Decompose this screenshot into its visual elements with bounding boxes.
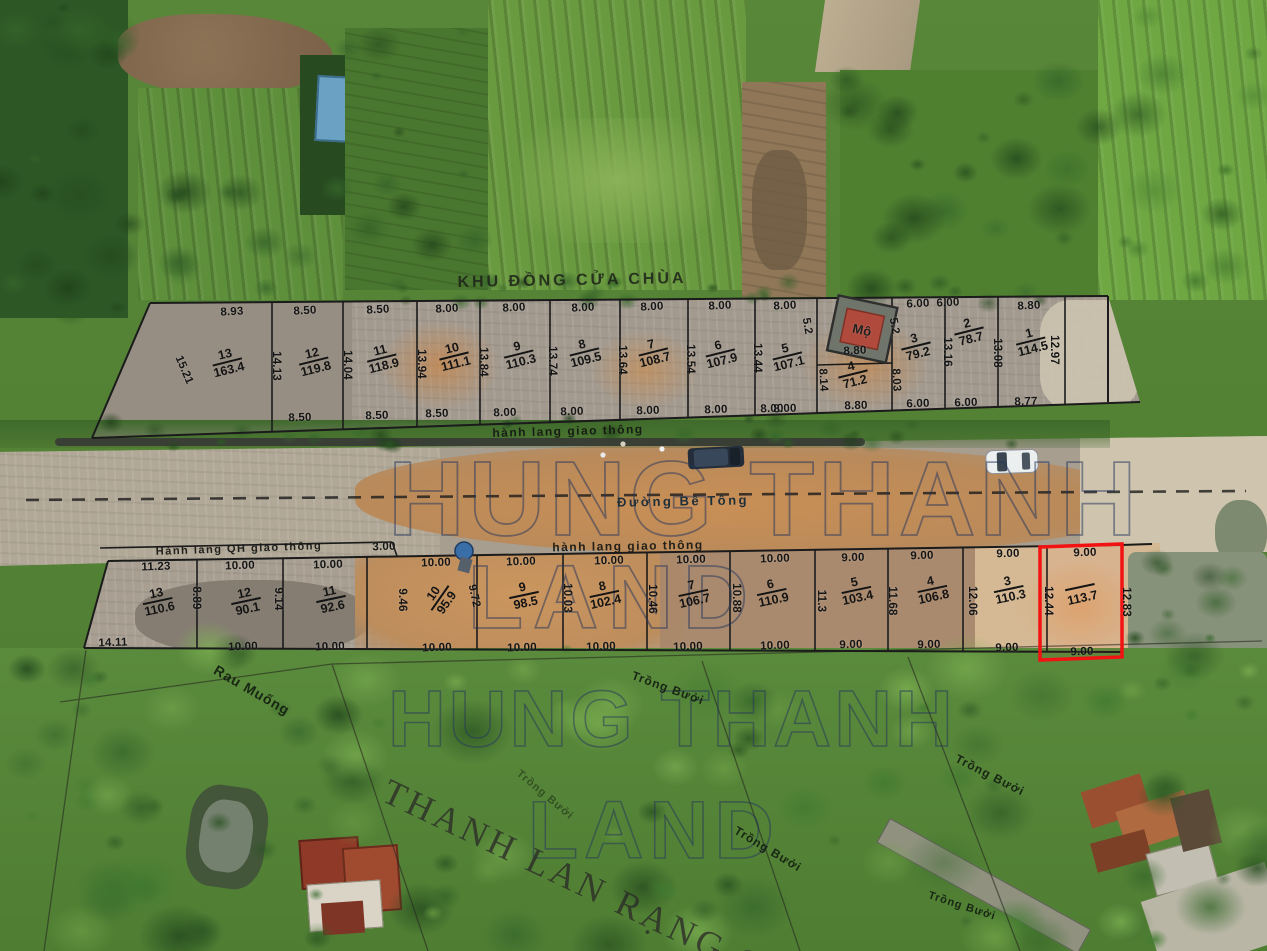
- top-plot-2-label-number: 2: [951, 314, 984, 336]
- watermark-road-line1: HUNG THANH: [388, 440, 1141, 558]
- top-plot-2-right-side-dim: 13.08: [991, 338, 1003, 368]
- canopy-blob: [160, 252, 203, 286]
- top-plot-8-label-number: 8: [566, 335, 599, 357]
- top-plot-10-label: 10111.1: [436, 338, 472, 374]
- van: [687, 446, 744, 470]
- canopy-blob: [893, 277, 917, 296]
- boundary-line: [84, 561, 108, 648]
- field-bright-right: [1098, 0, 1267, 300]
- canopy-blob: [846, 268, 897, 309]
- top-plot-3-label-number: 3: [898, 329, 931, 351]
- canopy-blob: [396, 283, 410, 294]
- top-plot-1-right-side-dim: 12.97: [1048, 335, 1060, 365]
- canopy-blob: [882, 193, 946, 244]
- canopy-blob: [36, 165, 49, 175]
- canopy-blob: [83, 233, 140, 279]
- canopy-blob: [876, 95, 919, 130]
- white-car: [986, 449, 1039, 474]
- top-plot-3-bottom-dim: 6.00: [906, 398, 930, 411]
- canopy-blob: [450, 293, 473, 311]
- bottom-plot-12-top-dim: 10.00: [225, 559, 255, 572]
- canopy-blob: [1032, 294, 1048, 307]
- bottom-plot-10-label-area: 95.9: [432, 586, 461, 619]
- canopy-blob: [65, 117, 100, 145]
- top-plot-12-top-dim: 8.50: [293, 304, 317, 317]
- canopy-blob: [947, 285, 963, 298]
- top-plot-5-top-dim: 8.00: [773, 299, 797, 312]
- top-plot-2-bottom-dim: 6.00: [954, 397, 978, 410]
- canopy-blob: [370, 71, 383, 82]
- bottom-plot-9-label-number: 9: [506, 578, 538, 599]
- boundary-line: [817, 363, 892, 365]
- bottom-plot-7-right-side-dim: 10.88: [730, 583, 742, 613]
- temple-roof-small: [321, 901, 365, 936]
- top-plot-1-label-area: 114.5: [1016, 338, 1049, 359]
- canopy-blob: [0, 10, 41, 50]
- canopy-blob: [100, 28, 139, 60]
- top-plot-10-label-area: 111.1: [440, 353, 472, 374]
- top-plot-13-label-area: 163.4: [212, 359, 246, 380]
- canopy-blob: [1109, 91, 1167, 138]
- top-plot-4-label: 471.2: [835, 356, 871, 392]
- bottom-plot-13-right-side-dim: 8.89: [190, 586, 202, 609]
- top-plot-2-label-area: 78.7: [955, 328, 987, 349]
- canopy-blob: [40, 25, 96, 70]
- bottom-band-boundary: [84, 542, 1152, 652]
- canopy-blob: [388, 276, 407, 291]
- canopy-blob: [108, 301, 125, 315]
- top-band-left-edge-dim: 15.21: [173, 354, 196, 386]
- top-plot-8-right-side-dim: 13.64: [616, 345, 628, 375]
- canopy-blob: [372, 172, 402, 196]
- bottom-plot-9-top-dim: 10.00: [506, 555, 536, 568]
- canopy-blob: [320, 175, 354, 202]
- canopy-blob: [1054, 230, 1074, 246]
- canopy-blob: [27, 153, 43, 165]
- top-plot-1-top-dim: 8.80: [1017, 299, 1041, 312]
- bottom-plot-7-label-area: 106.7: [678, 591, 712, 611]
- top-plot-4-left-side-dim: 8.14: [816, 368, 829, 392]
- canopy-blob: [457, 169, 470, 179]
- canopy-blob: [158, 245, 200, 279]
- top-plot-6-top-dim: 8.00: [708, 299, 732, 312]
- bottom-plot-7-top-dim: 10.00: [676, 553, 706, 566]
- bottom-plot-12-label-area: 90.1: [232, 599, 264, 619]
- dirt-mound: [118, 14, 333, 94]
- canopy-blob: [1032, 60, 1085, 102]
- canopy-blob: [1235, 81, 1267, 111]
- canopy-blob: [68, 7, 142, 66]
- top-plot-7-bottom-dim: 8.00: [704, 404, 728, 417]
- top-plot-9-bottom-dim: 8.00: [560, 406, 584, 419]
- canopy-blob: [777, 273, 801, 292]
- bottom-plot-9-label: 998.5: [506, 577, 542, 613]
- canopy-blob: [348, 211, 391, 245]
- canopy-blob: [759, 292, 771, 302]
- bottom-plot-3-label-area: 110.3: [994, 587, 1027, 607]
- bottom-plot-6-right-side-dim: 11.3: [815, 590, 827, 613]
- bottom-vegetation: [0, 648, 1267, 951]
- field-dark: [300, 55, 370, 215]
- top-plot-13-label-number: 13: [209, 345, 242, 367]
- roadside-wall: [55, 438, 865, 446]
- canopy-blob: [45, 5, 110, 57]
- top-plot-8-top-dim: 8.00: [571, 301, 595, 314]
- canopy-blob: [53, 299, 88, 327]
- top-plot-6-label: 6107.9: [701, 335, 739, 372]
- canopy-blob: [42, 12, 68, 33]
- corridor-label-qh: Hành lang QH giao thông: [156, 540, 323, 558]
- watermark-road-line2: LAND: [468, 548, 758, 648]
- bottom-plot-13-label: 13110.6: [140, 583, 176, 619]
- top-plot-11-top-dim: 8.50: [366, 303, 390, 316]
- bottom-plot-5-right-side-dim: 11.68: [886, 586, 898, 615]
- top-plot-4-bottom-dim: 8.80: [844, 400, 868, 413]
- top-plot-2-label: 278.7: [951, 313, 987, 349]
- bottom-plot-6-label-number: 6: [754, 575, 786, 596]
- top-plot-6-bottom-dim: 8.00: [760, 403, 784, 416]
- canopy-blob: [990, 137, 1043, 179]
- top-plot-2-top-dim: 6.00: [936, 296, 960, 309]
- top-plot-13-top-dim: 8.93: [220, 305, 244, 318]
- canopy-blob: [456, 27, 470, 38]
- grave-side-left-dim: 5.2: [800, 317, 815, 335]
- canopy-blob: [1132, 4, 1164, 30]
- top-plot-4-label-number: 4: [835, 357, 868, 379]
- top-plot-7-label: 7108.7: [634, 334, 672, 371]
- bottom-plot-6-top-dim: 10.00: [760, 552, 790, 565]
- canopy-blob: [399, 295, 412, 306]
- canopy-blob: [919, 191, 969, 231]
- top-plot-8-label-area: 109.5: [569, 349, 603, 370]
- bottom-plot-8-right-side-dim: 10.46: [646, 584, 658, 614]
- top-plot-13-label: 13163.4: [208, 344, 246, 381]
- grave-side-right-dim: 5.2: [887, 317, 902, 335]
- bottom-plot-highlighted-label-area: 113.7: [1066, 588, 1099, 608]
- field-light: [520, 118, 715, 243]
- canopy-blob: [1125, 239, 1150, 259]
- canopy-blob: [829, 66, 864, 94]
- top-plot-10-bottom-dim: 8.00: [493, 407, 517, 420]
- top-plot-7-label-area: 108.7: [638, 349, 672, 370]
- bottom-plot-13-label-area: 110.6: [143, 599, 176, 619]
- bottom-plot-12-right-side-dim: 9.14: [272, 587, 284, 610]
- road-name-label: Đường Bê Tông: [617, 492, 749, 509]
- bottom-plot-11-label-number: 11: [313, 582, 345, 603]
- canopy-blob: [1202, 248, 1249, 286]
- canopy-blob: [706, 283, 719, 293]
- top-plot-9-label: 9110.3: [501, 336, 538, 373]
- bottom-plot-6-label: 6110.9: [754, 574, 790, 610]
- blue-pump: [455, 542, 473, 573]
- canopy-blob: [47, 170, 111, 221]
- bottom-plot-11-top-dim: 10.00: [313, 558, 343, 571]
- canopy-blob: [1123, 167, 1182, 214]
- canopy-blob: [1216, 163, 1234, 178]
- top-plot-10-top-dim: 8.00: [435, 302, 459, 315]
- bottom-plot-11-label: 1192.6: [313, 581, 349, 617]
- top-plot-12-right-side-dim: 14.04: [341, 350, 353, 380]
- top-plot-9-label-number: 9: [501, 337, 534, 359]
- canopy-blob: [1075, 108, 1122, 146]
- bottom-plot-3-right-side-dim: 12.44: [1042, 586, 1054, 616]
- canopy-blob: [1244, 46, 1263, 61]
- canopy-blob: [1201, 197, 1243, 230]
- top-plot-11-right-side-dim: 13.94: [415, 349, 427, 379]
- canopy-blob: [456, 225, 493, 255]
- top-plot-9-label-area: 110.3: [504, 351, 537, 372]
- canopy-blob: [839, 103, 860, 120]
- top-plot-8-label: 8109.5: [565, 334, 603, 371]
- canopy-blob: [254, 278, 278, 297]
- canopy-blob: [29, 183, 56, 205]
- bottom-plot-5-label: 5103.4: [838, 572, 875, 608]
- canopy-blob: [867, 110, 914, 147]
- highlighted-plot-outline: [1040, 544, 1122, 660]
- bottom-plot-5-label-number: 5: [838, 573, 870, 594]
- top-plot-5-label-area: 107.1: [772, 353, 806, 374]
- canopy-blob: [334, 37, 363, 60]
- canopy-blob: [871, 221, 912, 254]
- canopy-blob: [744, 291, 761, 304]
- top-plot-7-top-dim: 8.00: [640, 300, 664, 313]
- bottom-plot-9-label-area: 98.5: [510, 593, 542, 613]
- canopy-blob: [1181, 269, 1210, 293]
- bottom-plot-11-right-side-dim: 9.46: [396, 588, 408, 611]
- canopy-blob: [0, 272, 28, 295]
- bottom-plot-4-right-side-dim: 12.06: [966, 586, 978, 616]
- top-plot-1-label-number: 1: [1013, 324, 1046, 346]
- bottom-plot-10-right-side-dim: 9.72: [466, 583, 483, 608]
- canopy-blob: [217, 174, 263, 211]
- top-plot-4-top-dim: 8.80: [843, 344, 867, 357]
- top-plot-8-bottom-dim: 8.00: [636, 405, 660, 418]
- bottom-plot-9-right-side-dim: 10.03: [561, 583, 573, 613]
- bottom-plot-10-label-number: 10: [420, 578, 449, 611]
- bottom-plot-highlighted-label: 113.7: [1063, 574, 1099, 608]
- field: [138, 88, 343, 300]
- tree-block: [0, 0, 128, 318]
- top-plot-5-label: 5107.1: [768, 338, 806, 375]
- canopy-blob: [114, 212, 144, 236]
- blue-tarp: [314, 75, 357, 143]
- canopy-blob: [1117, 235, 1134, 249]
- bottom-plot-5-label-area: 103.4: [841, 588, 875, 608]
- bottom-plot-3-top-dim: 9.00: [996, 548, 1020, 561]
- bottom-plot-8-top-dim: 10.00: [594, 554, 624, 567]
- canopy-blob: [981, 217, 1010, 240]
- top-plot-11-label-number: 11: [364, 341, 397, 363]
- bottom-plot-4-label-number: 4: [914, 572, 946, 593]
- path-top-right: [815, 0, 920, 72]
- top-plot-12-label-area: 119.8: [299, 358, 332, 379]
- bottom-plot-8-label-number: 8: [586, 577, 618, 598]
- canopy-blob: [822, 78, 888, 131]
- top-plot-6-label-area: 107.9: [705, 350, 739, 371]
- canopy-blob: [0, 164, 23, 200]
- top-plot-11-label: 11118.9: [364, 340, 401, 377]
- bottom-plot-3-label-number: 3: [991, 572, 1023, 593]
- top-plot-7-right-side-dim: 13.54: [684, 344, 696, 374]
- aerial-plot-map: HUNG THANH LAND HUNG THANH LAND THANH LA…: [0, 0, 1267, 951]
- top-plot-1-bottom-dim: 8.77: [1014, 396, 1038, 409]
- top-plot-3-top-dim: 6.00: [906, 297, 930, 310]
- canopy-blob: [616, 292, 639, 310]
- top-plot-4-label-area: 71.2: [839, 371, 871, 392]
- top-plot-1-label: 1114.5: [1013, 323, 1050, 360]
- canopy-blob: [88, 38, 128, 70]
- canopy-blob: [392, 126, 406, 137]
- top-plot-9-right-side-dim: 13.74: [546, 346, 558, 376]
- top-plot-12-label-number: 12: [296, 344, 329, 366]
- top-band-boundary: [92, 296, 1140, 438]
- canopy-blob: [157, 170, 211, 214]
- canopy-blob: [411, 228, 453, 261]
- top-plot-6-label-number: 6: [702, 336, 735, 358]
- mud-water: [752, 150, 807, 270]
- canopy-blob: [244, 226, 285, 259]
- bottom-plot-4-top-dim: 9.00: [910, 550, 934, 563]
- bottom-plot-8-label: 8102.4: [586, 576, 623, 612]
- area-name-label: KHU ĐỒNG CỬA CHÙA: [457, 270, 686, 292]
- top-plot-3-label-area: 79.2: [902, 343, 934, 364]
- top-plot-11-bottom-dim: 8.50: [425, 408, 449, 421]
- top-plot-11-label-area: 118.9: [367, 355, 400, 376]
- canopy-blob: [1013, 91, 1034, 108]
- canopy-blob: [1136, 53, 1189, 95]
- canopy-blob: [976, 293, 1001, 313]
- top-plot-7-label-number: 7: [635, 335, 668, 357]
- boundary-line: [150, 296, 1108, 303]
- field-large: [488, 0, 746, 290]
- corridor-width-dim: 3.00: [372, 541, 396, 554]
- canopy-blob: [16, 249, 57, 282]
- bottom-plot-highlighted-top-dim: 9.00: [1073, 547, 1097, 560]
- top-plot-4-right-side-dim: 8.03: [889, 368, 902, 392]
- top-plot-10-right-side-dim: 13.84: [477, 347, 489, 377]
- canopy-blob: [356, 26, 402, 63]
- bottom-plot-4-label-area: 106.8: [917, 587, 951, 607]
- canopy-blob: [283, 242, 317, 269]
- bottom-plot-10-label: 1095.9: [419, 577, 461, 619]
- bottom-plot-4-label: 4106.8: [914, 571, 951, 607]
- canopy-blob: [51, 129, 112, 178]
- canopy-blob: [43, 268, 92, 307]
- bottom-plot-13-top-dim: 11.23: [141, 560, 171, 573]
- mud-field: [742, 82, 826, 297]
- canopy-blob: [386, 192, 422, 221]
- boundary-line: [92, 303, 150, 438]
- grave-label: Mộ: [851, 321, 873, 340]
- top-plot-5-bottom-dim: 8.00: [773, 403, 797, 416]
- field: [345, 28, 493, 290]
- bottom-plot-11-label-area: 92.6: [317, 597, 349, 617]
- banana-grove: [840, 70, 1105, 298]
- bottom-plot-7-label: 7106.7: [675, 575, 712, 611]
- canopy-blob: [57, 3, 70, 14]
- canopy-blob: [1043, 150, 1091, 188]
- top-plot-3-right-side-dim: 13.16: [941, 337, 953, 367]
- top-plot-13-right-side-dim: 14.13: [270, 351, 282, 381]
- top-plot-12-label: 12119.8: [296, 343, 333, 380]
- bottom-plot-8-label-area: 102.4: [589, 592, 623, 612]
- canopy-blob: [1027, 183, 1092, 235]
- canopy-blob: [472, 295, 490, 309]
- top-plot-6-right-side-dim: 13.44: [751, 343, 763, 373]
- canopy-blob: [1013, 282, 1038, 302]
- canopy-blob: [165, 186, 188, 204]
- bottom-plot-highlighted-label-number: [1065, 583, 1095, 591]
- canopy-blob: [754, 285, 774, 301]
- top-plot-5-label-number: 5: [769, 339, 802, 361]
- bottom-plot-3-label: 3110.3: [991, 571, 1027, 607]
- bottom-plot-6-label-area: 110.9: [757, 590, 790, 610]
- canopy-blob: [219, 185, 237, 200]
- canopy-blob: [909, 158, 926, 172]
- top-plot-3-label: 379.2: [898, 328, 934, 364]
- top-plot-10-label-number: 10: [436, 339, 469, 361]
- corridor-label-bottom: hành lang giao thông: [552, 538, 704, 555]
- canopy-blob: [976, 131, 992, 144]
- canopy-blob: [953, 162, 978, 182]
- bottom-plot-12-label: 1290.1: [228, 583, 264, 619]
- canopy-blob: [928, 274, 951, 292]
- bottom-plot-13-label-number: 13: [140, 584, 172, 605]
- boundary-line: [1122, 544, 1152, 545]
- bottom-plot-5-top-dim: 9.00: [841, 552, 865, 565]
- bottom-plot-7-label-number: 7: [675, 576, 707, 597]
- bottom-plot-10-top-dim: 10.00: [421, 556, 451, 569]
- top-plot-9-top-dim: 8.00: [502, 301, 526, 314]
- bottom-plot-12-label-number: 12: [228, 584, 260, 605]
- canopy-blob: [576, 290, 601, 310]
